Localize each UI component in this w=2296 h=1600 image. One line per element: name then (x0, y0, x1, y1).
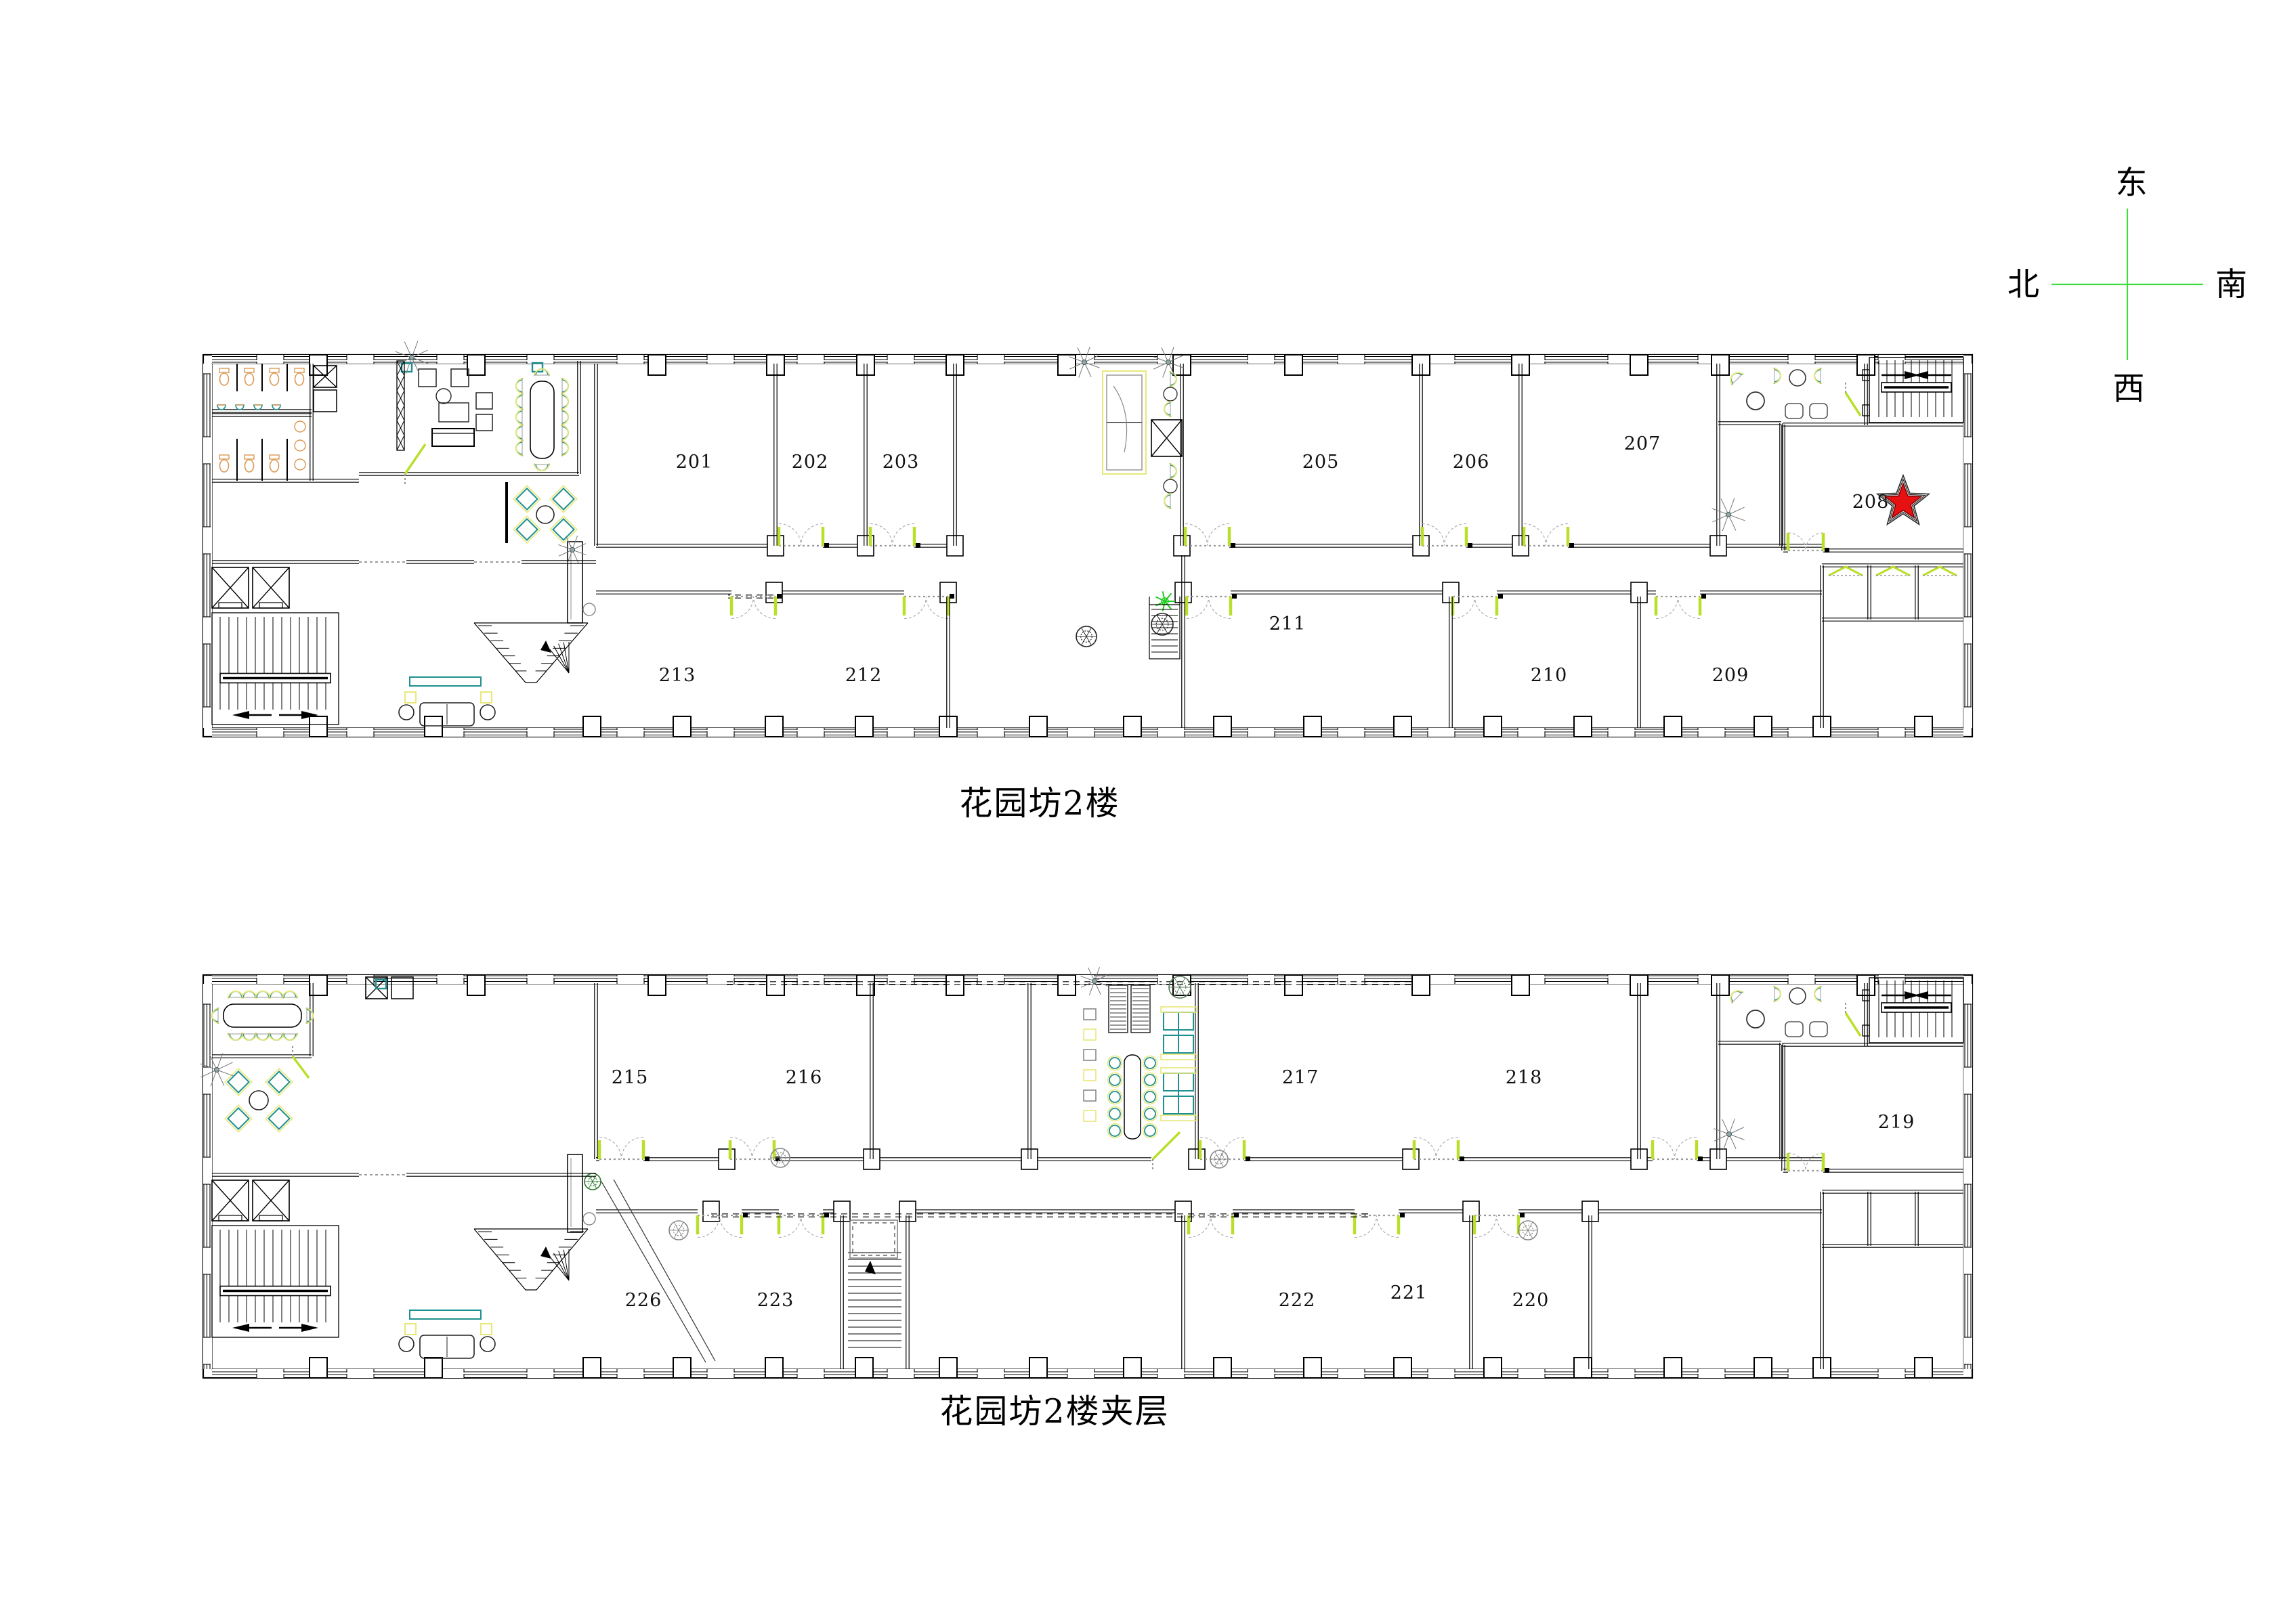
compass-rose: 东 南 西 北 (2007, 165, 2247, 408)
floor1-room-labels: 201202203205206207208209210211212213 (659, 433, 1890, 686)
room-label-212: 212 (845, 665, 883, 686)
compass-south-label: 南 (2215, 266, 2247, 303)
room-label-209: 209 (1712, 665, 1749, 686)
floor2-title: 花园坊2楼夹层 (939, 1392, 1169, 1431)
room-label-220: 220 (1512, 1290, 1550, 1311)
room-label-226: 226 (625, 1290, 662, 1311)
floor1-title-group: 花园坊2楼 (959, 784, 1120, 823)
floor2-plan (200, 967, 1972, 1378)
room-label-207: 207 (1624, 433, 1661, 454)
room-label-201: 201 (676, 452, 713, 473)
room-label-206: 206 (1453, 452, 1490, 473)
floor2-room-labels: 215216217218219220221222223226 (612, 1067, 1915, 1311)
room-label-210: 210 (1531, 665, 1568, 686)
room-label-219: 219 (1878, 1112, 1915, 1133)
floor1-title: 花园坊2楼 (959, 784, 1120, 823)
room-label-211: 211 (1269, 613, 1306, 634)
compass-north-label: 北 (2007, 266, 2039, 303)
floor1-plan (203, 341, 1972, 737)
floor-plan-canvas: 201202203205206207208209210211212213 215… (0, 0, 2296, 1600)
room-label-223: 223 (757, 1290, 794, 1311)
compass-west-label: 西 (2113, 370, 2145, 408)
room-label-203: 203 (883, 452, 920, 473)
room-label-216: 216 (786, 1067, 823, 1088)
floor2-title-group: 花园坊2楼夹层 (939, 1392, 1169, 1431)
room-label-202: 202 (792, 452, 829, 473)
room-label-218: 218 (1506, 1067, 1543, 1088)
room-label-213: 213 (659, 665, 696, 686)
room-label-222: 222 (1279, 1290, 1316, 1311)
room-label-205: 205 (1302, 452, 1340, 473)
compass-east-label: 东 (2116, 165, 2148, 202)
floorplan-sheet: 201202203205206207208209210211212213 215… (0, 0, 2296, 1600)
room-label-217: 217 (1282, 1067, 1319, 1088)
room-label-208: 208 (1852, 492, 1890, 513)
room-label-221: 221 (1390, 1282, 1428, 1303)
room-208-star-marker (1877, 475, 1929, 524)
room-label-215: 215 (612, 1067, 649, 1088)
